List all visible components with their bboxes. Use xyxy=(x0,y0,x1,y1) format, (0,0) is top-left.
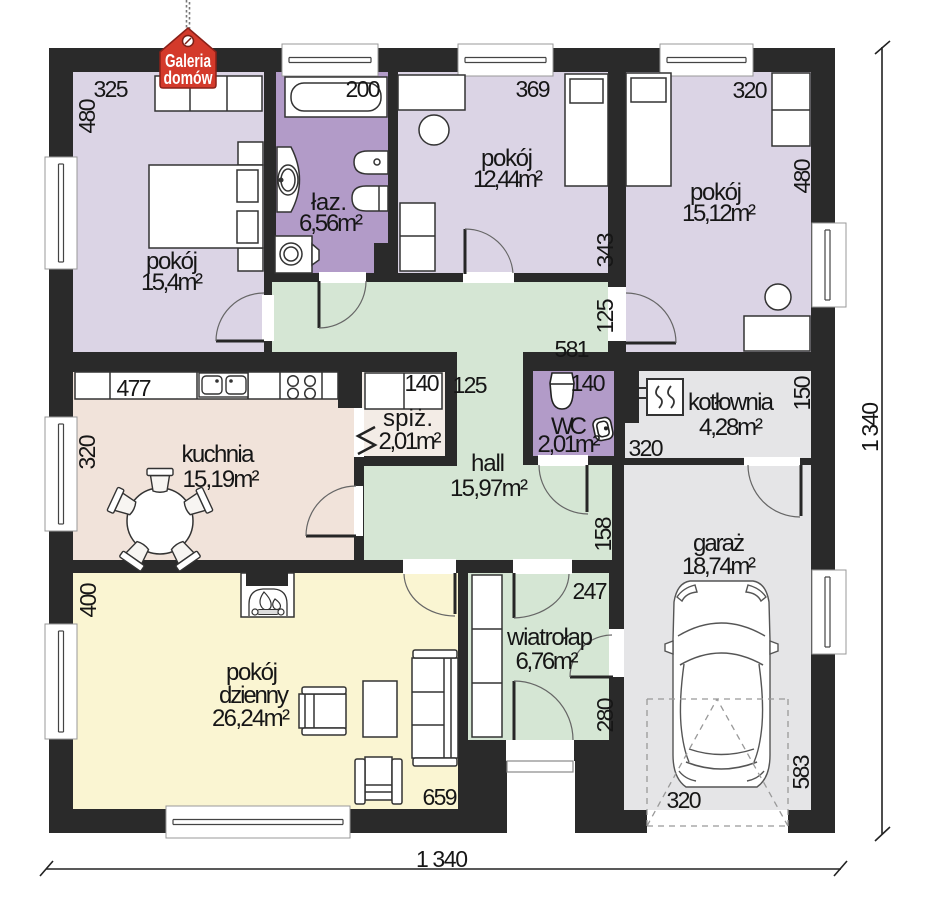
svg-text:369: 369 xyxy=(516,76,551,102)
svg-text:1 340: 1 340 xyxy=(416,846,468,872)
svg-text:400: 400 xyxy=(75,583,101,618)
svg-text:kotłownia: kotłownia xyxy=(688,389,775,416)
svg-text:15,4m²: 15,4m² xyxy=(141,269,203,296)
svg-text:26,24m²: 26,24m² xyxy=(212,705,290,732)
svg-text:hall: hall xyxy=(471,450,505,477)
svg-text:6,56m²: 6,56m² xyxy=(299,210,363,237)
svg-text:320: 320 xyxy=(629,435,664,461)
svg-text:15,97m²: 15,97m² xyxy=(450,475,528,502)
svg-text:1 340: 1 340 xyxy=(857,402,883,452)
svg-text:domów: domów xyxy=(164,68,214,88)
svg-text:6,76m²: 6,76m² xyxy=(516,648,579,675)
svg-text:150: 150 xyxy=(789,376,815,411)
svg-text:581: 581 xyxy=(555,336,590,362)
svg-text:480: 480 xyxy=(789,159,815,194)
svg-text:15,12m²: 15,12m² xyxy=(682,200,756,227)
svg-text:320: 320 xyxy=(667,787,702,813)
svg-text:2,01m²: 2,01m² xyxy=(538,431,601,458)
svg-text:158: 158 xyxy=(590,517,616,552)
svg-text:wiatrołap: wiatrołap xyxy=(506,624,593,651)
svg-text:2,01m²: 2,01m² xyxy=(379,428,442,455)
svg-text:12,44m²: 12,44m² xyxy=(473,166,543,193)
svg-text:280: 280 xyxy=(592,698,618,733)
svg-text:477: 477 xyxy=(117,375,152,401)
svg-text:480: 480 xyxy=(74,99,100,134)
svg-text:140: 140 xyxy=(571,370,606,396)
svg-text:18,74m²: 18,74m² xyxy=(682,553,756,580)
svg-text:4,28m²: 4,28m² xyxy=(699,414,763,441)
svg-text:140: 140 xyxy=(405,370,440,396)
svg-text:125: 125 xyxy=(453,372,488,398)
svg-text:kuchnia: kuchnia xyxy=(182,441,256,468)
svg-text:247: 247 xyxy=(573,578,608,604)
svg-text:659: 659 xyxy=(423,784,458,810)
svg-text:583: 583 xyxy=(788,755,814,790)
svg-text:320: 320 xyxy=(74,435,100,470)
svg-text:320: 320 xyxy=(733,77,768,103)
svg-text:200: 200 xyxy=(346,76,381,102)
svg-text:343: 343 xyxy=(592,233,618,268)
svg-text:325: 325 xyxy=(94,76,129,102)
svg-text:15,19m²: 15,19m² xyxy=(183,466,260,493)
svg-text:125: 125 xyxy=(592,299,618,334)
